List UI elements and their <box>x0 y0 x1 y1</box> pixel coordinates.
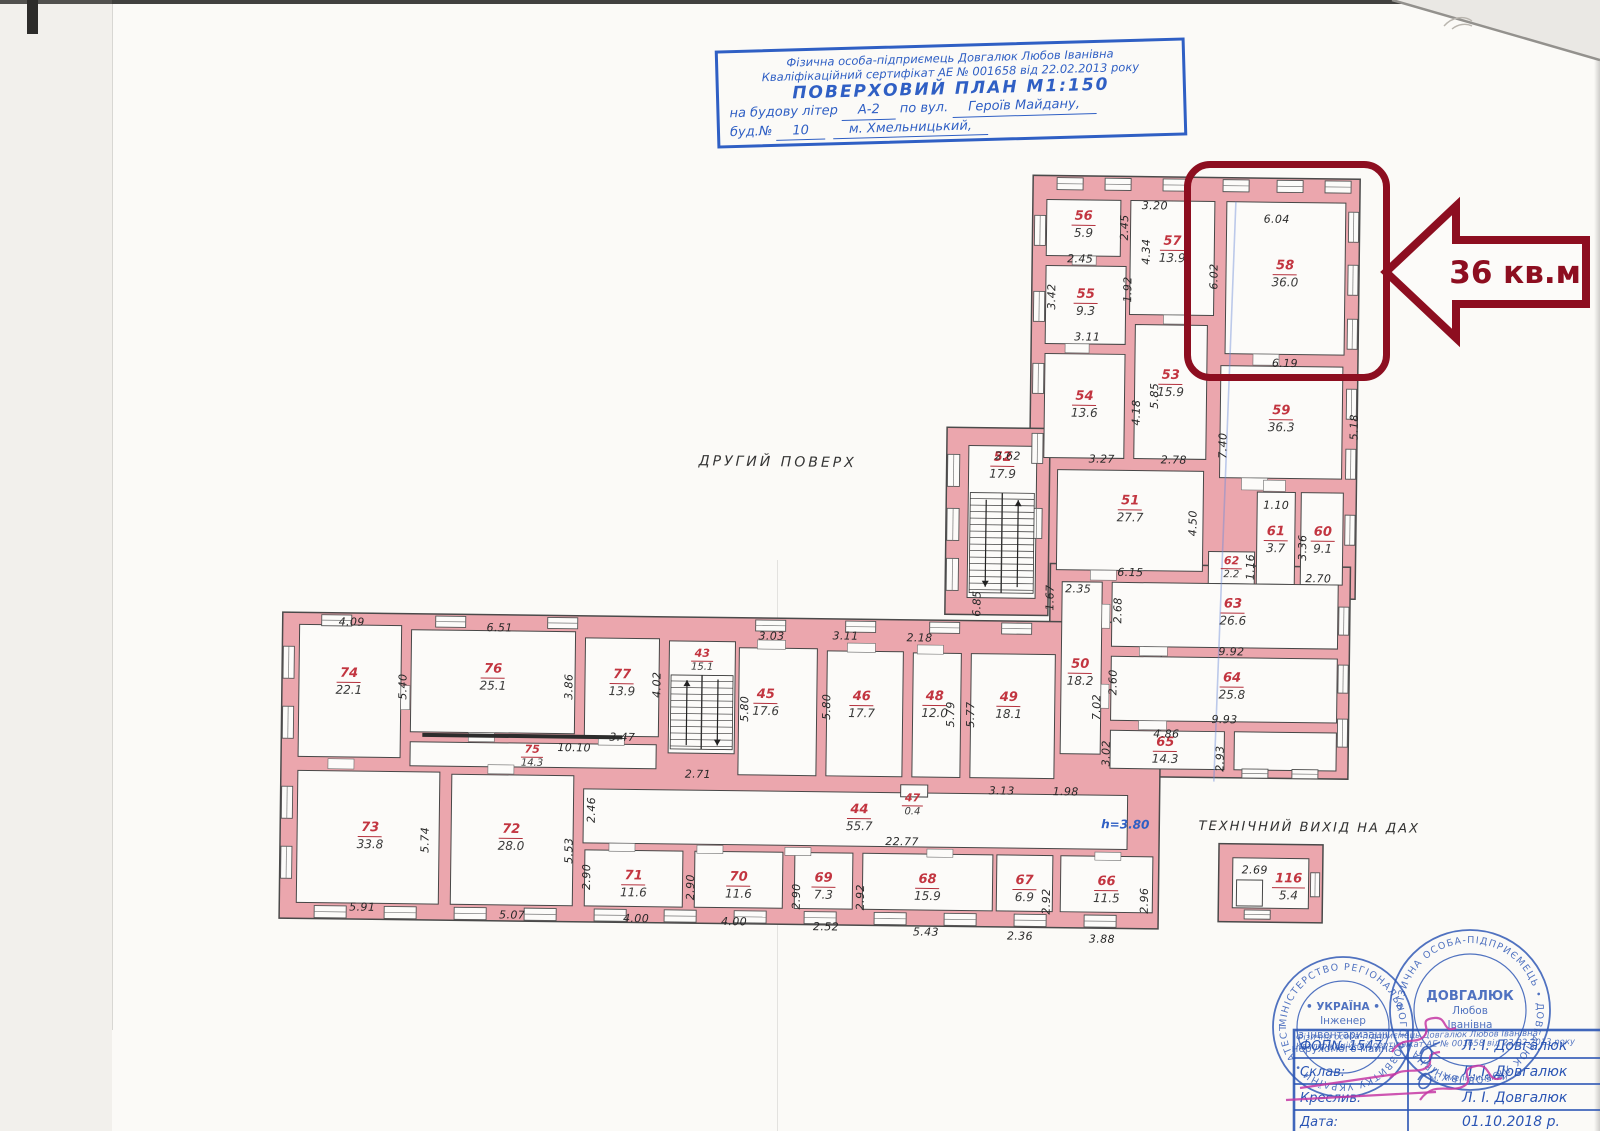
room-area: 13.6 <box>1071 405 1098 419</box>
room-area: 5.9 <box>1071 225 1095 239</box>
room-number: 69 <box>811 872 835 888</box>
room-number: 76 <box>481 662 505 678</box>
room-area: 5.4 <box>1272 888 1305 902</box>
dimension-label: 1.98 <box>1053 785 1079 798</box>
dimension-label: 5.77 <box>964 701 977 727</box>
dimension-label: 2.46 <box>585 797 598 823</box>
room-number: 56 <box>1072 210 1096 226</box>
dimension-label: 2.69 <box>1242 863 1268 876</box>
dimension-label: 4.50 <box>1186 510 1199 536</box>
room-area: 55.7 <box>846 819 873 833</box>
dimension-label: 5.79 <box>944 701 957 727</box>
room-label-72: 7228.0 <box>498 820 525 853</box>
room-area: 22.1 <box>335 682 362 696</box>
dimension-label: 2.90 <box>684 874 697 900</box>
room-area: 2.2 <box>1221 569 1242 581</box>
room-area: 17.6 <box>752 703 779 717</box>
room-area: 17.7 <box>848 706 875 720</box>
floor-title: ДРУГИЙ ПОВЕРХ <box>699 453 857 471</box>
room-area: 27.7 <box>1117 510 1144 524</box>
room-label-46: 4617.7 <box>848 687 875 720</box>
room-area: 11.5 <box>1093 891 1120 905</box>
room-number: 49 <box>997 691 1021 707</box>
room-area: 6.9 <box>1012 890 1036 904</box>
room-area: 25.1 <box>479 678 506 692</box>
dimension-label: 2.18 <box>906 631 932 644</box>
dimension-label: 3.86 <box>562 674 575 700</box>
room-number: 67 <box>1012 874 1036 890</box>
room-number: 68 <box>915 873 939 889</box>
dimension-label: 4.00 <box>721 915 747 928</box>
room-number: 74 <box>337 667 361 683</box>
dimension-label: 3.11 <box>1074 330 1100 343</box>
dimension-label: 3.88 <box>1089 933 1115 946</box>
room-number: 66 <box>1094 875 1118 891</box>
dimension-label: 2.70 <box>1305 572 1331 585</box>
room-number: 50 <box>1068 658 1092 674</box>
dimension-label: 1.16 <box>1244 554 1257 580</box>
room-label-60: 609.1 <box>1311 523 1335 556</box>
room-number: 73 <box>358 821 382 837</box>
room-area: 3.7 <box>1264 541 1288 555</box>
room-label-61: 613.7 <box>1264 522 1288 555</box>
room-number: 59 <box>1269 404 1293 420</box>
dimension-label: 4.34 <box>1140 239 1153 265</box>
building-letter: А-2 <box>842 102 896 121</box>
room-number: 53 <box>1159 369 1183 385</box>
dimension-label: 2.62 <box>995 449 1021 462</box>
room-number: 116 <box>1272 872 1305 888</box>
room-area: 26.6 <box>1219 613 1246 627</box>
room-label-70: 7011.6 <box>725 867 752 900</box>
highlight-area-text: 36 кв.м. <box>1449 255 1592 291</box>
dimension-label: 4.86 <box>1153 727 1179 740</box>
room-number: 44 <box>847 803 871 819</box>
room-label-44: 4455.7 <box>846 800 873 833</box>
tech-exit-caption: ТЕХНІЧНИЙ ВИХІД НА ДАХ <box>1198 819 1420 837</box>
title-block: Фізична особа-підприємець Довгалюк Любов… <box>715 37 1188 148</box>
room-area: 15.9 <box>1157 384 1184 398</box>
room-number: 57 <box>1160 235 1184 251</box>
room-label-74: 7422.1 <box>335 664 362 697</box>
dimension-label: 2.92 <box>854 884 867 910</box>
room-area: 14.3 <box>1152 751 1179 765</box>
room-number: 77 <box>610 668 634 684</box>
dimension-label: 5.43 <box>913 925 939 938</box>
dimension-label: 5.07 <box>499 908 525 921</box>
dimension-label: 2.92 <box>1040 888 1053 914</box>
dimension-label: 3.13 <box>989 784 1015 797</box>
dimension-label: 2.90 <box>580 864 593 890</box>
room-area: 33.8 <box>357 837 384 851</box>
room-number: 45 <box>754 688 778 704</box>
dimension-label: 3.36 <box>1296 535 1309 561</box>
room-area: 9.1 <box>1311 541 1335 555</box>
room-area: 18.1 <box>995 706 1022 720</box>
room-number: 75 <box>521 744 542 758</box>
room-number: 51 <box>1118 494 1142 510</box>
dimension-label: 3.11 <box>832 629 858 642</box>
dimension-label: 4.18 <box>1130 399 1143 425</box>
dimension-label: 2.52 <box>813 920 839 933</box>
dimension-label: 9.93 <box>1211 713 1237 726</box>
dimension-label: 5.18 <box>1347 414 1360 440</box>
room-label-47: 470.4 <box>902 788 924 817</box>
room-label-51: 5127.7 <box>1117 491 1144 524</box>
dimension-label: 5.53 <box>562 838 575 864</box>
room-label-73: 7333.8 <box>357 818 384 851</box>
room-area: 13.9 <box>608 684 635 698</box>
room-number: 47 <box>902 792 923 806</box>
dimension-label: 2.71 <box>685 768 711 781</box>
room-area: 7.3 <box>811 887 835 901</box>
room-label-69: 697.3 <box>811 869 835 902</box>
room-label-45: 4517.6 <box>752 685 779 718</box>
room-label-66: 6611.5 <box>1093 872 1120 905</box>
dimension-label: 3.47 <box>609 731 635 744</box>
room-number: 71 <box>621 869 645 885</box>
room-label-63: 6326.6 <box>1219 594 1246 627</box>
dimension-label: 5.91 <box>349 901 375 914</box>
dimension-label: 2.68 <box>1111 597 1124 623</box>
dimension-label: 3.03 <box>758 629 784 642</box>
height-annotation: h=3.80 <box>1101 817 1149 832</box>
room-area: 11.6 <box>620 885 647 899</box>
room-label-57: 5713.9 <box>1159 232 1186 265</box>
room-label-62: 622.2 <box>1221 551 1243 580</box>
room-label-71: 7111.6 <box>620 866 647 899</box>
room-area: 15.1 <box>691 661 713 673</box>
room-label-55: 559.3 <box>1073 285 1097 318</box>
dimension-label: 5.80 <box>738 696 751 722</box>
room-number: 61 <box>1264 525 1288 541</box>
dimension-label: 5.85 <box>1148 383 1161 409</box>
dimension-label: 7.02 <box>1090 694 1103 720</box>
dimension-label: 1.67 <box>1043 584 1056 610</box>
room-number: 55 <box>1074 288 1098 304</box>
dimension-label: 9.92 <box>1218 645 1244 658</box>
dimension-label: 2.45 <box>1118 214 1131 240</box>
room-area: 11.6 <box>725 886 752 900</box>
dimension-label: 2.60 <box>1106 669 1119 695</box>
dimension-label: 5.74 <box>418 827 431 853</box>
room-area: 17.9 <box>989 466 1016 480</box>
room-label-116: 1165.4 <box>1272 869 1306 902</box>
dimension-label: 5.40 <box>396 674 409 700</box>
room-area: 13.9 <box>1159 250 1186 264</box>
room-area: 25.8 <box>1218 687 1245 701</box>
room-label-56: 565.9 <box>1071 207 1095 240</box>
room-label-59: 5936.3 <box>1268 401 1295 434</box>
dimension-label: 4.02 <box>650 672 663 698</box>
room-area: 28.0 <box>498 838 525 852</box>
dimension-label: 22.77 <box>885 835 919 848</box>
room-label-76: 7625.1 <box>479 659 506 692</box>
room-area: 36.3 <box>1268 420 1295 434</box>
dimension-label: 5.80 <box>820 694 833 720</box>
room-number: 60 <box>1311 526 1335 542</box>
room-number: 64 <box>1220 672 1244 688</box>
building-prefix: на будову літер <box>729 103 838 121</box>
room-label-75: 7514.3 <box>521 740 544 769</box>
room-area: 14.3 <box>521 757 543 769</box>
dimension-label: 4.09 <box>339 615 365 628</box>
room-label-68: 6815.9 <box>914 870 941 903</box>
dimension-label: 3.02 <box>1099 740 1112 766</box>
room-label-54: 5413.6 <box>1071 387 1098 420</box>
dimension-label: 2.45 <box>1067 252 1093 265</box>
room-area: 0.4 <box>902 806 923 818</box>
room-label-64: 6425.8 <box>1218 668 1245 701</box>
dimension-label: 2.93 <box>1213 746 1226 772</box>
dimension-label: 4.00 <box>623 912 649 925</box>
dimension-label: 7.40 <box>1216 433 1229 459</box>
room-label-49: 4918.1 <box>995 688 1022 721</box>
scanned-floor-plan-page: ДРУГИЙ ПОВЕРХ ТЕХНІЧНИЙ ВИХІД НА ДАХ h=3… <box>0 0 1600 1131</box>
room-label-43: 4315.1 <box>691 644 714 673</box>
room-area: 15.9 <box>914 888 941 902</box>
dimension-label: 1.92 <box>1121 276 1134 302</box>
room-label-67: 676.9 <box>1012 871 1036 904</box>
room-number: 43 <box>692 648 713 662</box>
room-number: 54 <box>1072 390 1096 406</box>
room-number: 46 <box>850 690 874 706</box>
house-prefix: буд.№ <box>730 124 773 140</box>
dimension-label: 2.78 <box>1161 453 1187 466</box>
room-area: 18.2 <box>1067 673 1094 687</box>
room-number: 72 <box>499 823 523 839</box>
dimension-label: 2.96 <box>1138 888 1151 914</box>
highlight-arrow: 36 кв.м. <box>1378 195 1596 350</box>
dimension-label: 2.35 <box>1065 582 1091 595</box>
dimension-label: 3.27 <box>1089 453 1115 466</box>
dimension-label: 2.90 <box>790 883 803 909</box>
dimension-label: 6.51 <box>487 621 513 634</box>
dimension-label: 2.36 <box>1007 930 1033 943</box>
dimension-label: 6.15 <box>1117 566 1143 579</box>
highlight-box <box>1184 161 1390 381</box>
room-number: 70 <box>726 870 750 886</box>
room-number: 62 <box>1221 555 1242 569</box>
dimension-label: 1.10 <box>1263 499 1289 512</box>
room-number: 63 <box>1221 598 1245 614</box>
dimension-label: 3.42 <box>1045 283 1058 309</box>
city-name: м. Хмельницький, <box>833 118 989 140</box>
dimension-label: 6.85 <box>970 591 983 617</box>
room-label-53: 5315.9 <box>1157 366 1184 399</box>
room-label-77: 7713.9 <box>608 665 635 698</box>
room-label-50: 5018.2 <box>1067 655 1094 688</box>
house-number: 10 <box>776 122 825 141</box>
room-area: 9.3 <box>1073 303 1097 317</box>
street-prefix: по вул. <box>900 100 949 116</box>
dimension-label: 10.10 <box>557 741 591 754</box>
dimension-label: 3.20 <box>1142 199 1168 212</box>
